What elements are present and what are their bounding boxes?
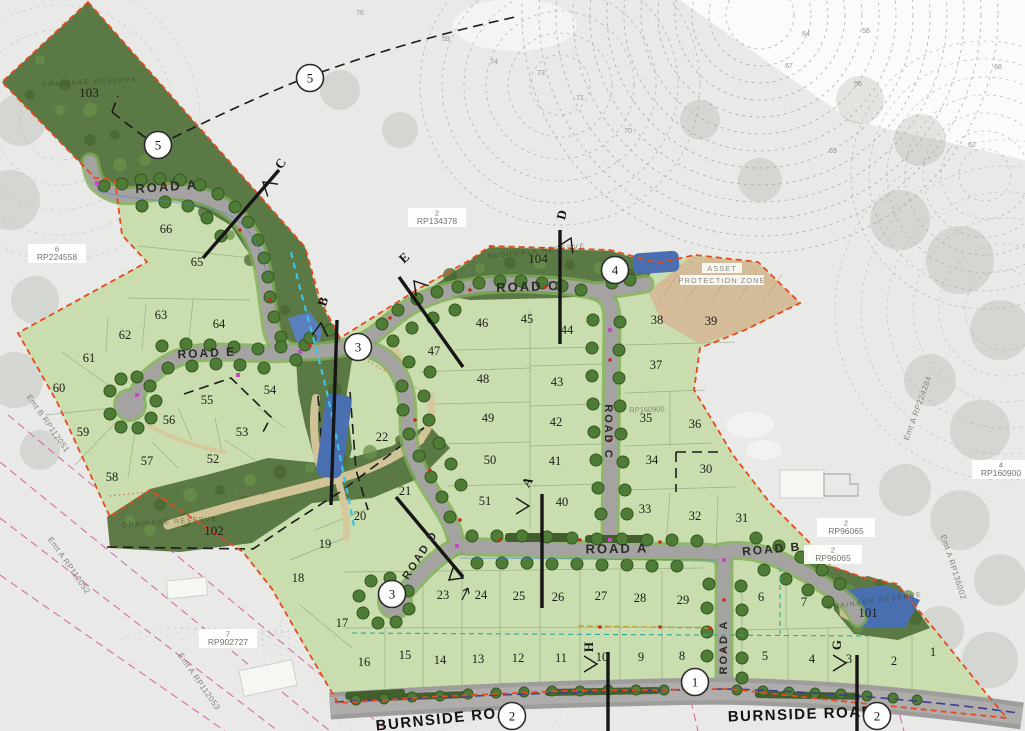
- street-tree: [834, 578, 846, 590]
- street-tree: [466, 530, 478, 542]
- lot-number: 30: [700, 462, 713, 476]
- street-tree: [836, 689, 846, 699]
- street-tree: [646, 560, 658, 572]
- contour-elevation-label: 67: [785, 63, 793, 70]
- lot-number: 38: [651, 313, 664, 327]
- existing-building: [780, 470, 824, 498]
- rp-plan-number: RP902727: [208, 637, 248, 647]
- street-tree: [229, 201, 241, 213]
- street-tree: [614, 316, 626, 328]
- contour-elevation-label: 62: [968, 142, 976, 149]
- lot-number: 15: [399, 648, 412, 662]
- canopy: [273, 465, 287, 479]
- street-tree: [587, 398, 599, 410]
- hydrant-dot: [413, 418, 417, 422]
- lot-number: 60: [53, 381, 66, 395]
- road-name-label: ROAD C: [602, 404, 614, 459]
- aerial-foliage: [320, 70, 360, 110]
- street-tree: [736, 672, 748, 684]
- street-tree: [425, 471, 437, 483]
- street-tree: [372, 617, 384, 629]
- lot-number: 11: [555, 651, 567, 665]
- lot-number: 9: [638, 650, 644, 664]
- callout-number: 3: [389, 587, 396, 602]
- lot-number: 47: [428, 344, 441, 358]
- hydrant-dot: [498, 538, 502, 542]
- lot-number: 4: [809, 652, 816, 666]
- street-tree: [592, 482, 604, 494]
- street-tree: [445, 458, 457, 470]
- lot-number: 45: [521, 312, 534, 326]
- hydrant-dot: [722, 598, 726, 602]
- lot-number: 64: [213, 317, 226, 331]
- contour-elevation-label: 70: [624, 128, 632, 135]
- street-tree: [571, 558, 583, 570]
- lot-number: 7: [801, 595, 807, 609]
- street-tree: [418, 390, 430, 402]
- street-tree: [433, 437, 445, 449]
- utility-marker: [722, 558, 726, 562]
- lot-number: 32: [689, 509, 702, 523]
- street-tree: [758, 564, 770, 576]
- street-tree: [736, 604, 748, 616]
- canopy: [215, 485, 225, 495]
- hydrant-dot: [708, 626, 712, 630]
- street-tree: [431, 286, 443, 298]
- canopy: [280, 305, 290, 315]
- street-tree: [262, 271, 274, 283]
- contour-elevation-label: 64: [802, 31, 810, 38]
- hydrant-dot: [598, 625, 602, 629]
- lot-number: 1: [930, 645, 936, 659]
- street-tree: [471, 557, 483, 569]
- lot-number: 34: [646, 453, 659, 467]
- street-tree: [614, 400, 626, 412]
- street-tree: [104, 385, 116, 397]
- hydrant-dot: [388, 316, 392, 320]
- lot-number: 27: [595, 589, 608, 603]
- street-tree: [353, 590, 365, 602]
- street-tree: [145, 412, 157, 424]
- lot-number: 35: [640, 411, 653, 425]
- rp-plan-number: RP160900: [981, 468, 1021, 478]
- street-tree: [156, 340, 168, 352]
- canopy: [84, 134, 96, 146]
- lot-number: 37: [650, 358, 663, 372]
- contour-elevation-label: 71: [576, 95, 584, 102]
- street-tree: [701, 602, 713, 614]
- section-letter: H: [581, 642, 596, 652]
- lot-number: 104: [528, 251, 548, 266]
- canopy: [154, 499, 166, 511]
- contour-elevation-label: 76: [356, 10, 364, 17]
- lot-number: 36: [689, 417, 702, 431]
- street-tree: [115, 373, 127, 385]
- street-tree: [357, 607, 369, 619]
- contour-elevation-label: 73: [537, 70, 545, 77]
- aerial-clear-patch: [726, 412, 774, 438]
- road-name-label: ROAD C: [496, 278, 560, 295]
- lot-number: 23: [437, 588, 450, 602]
- street-tree: [546, 558, 558, 570]
- lot-number: 25: [513, 589, 526, 603]
- lot-number: 13: [472, 652, 485, 666]
- lot-number: 29: [677, 593, 690, 607]
- lot-number: 50: [484, 453, 497, 467]
- lot-number: 58: [106, 470, 119, 484]
- street-tree: [736, 652, 748, 664]
- contour-elevation-label: 69: [829, 148, 837, 155]
- lot-number: 55: [201, 393, 214, 407]
- hydrant-dot: [268, 298, 272, 302]
- street-tree: [666, 534, 678, 546]
- callout-number: 2: [509, 709, 516, 724]
- street-tree: [387, 335, 399, 347]
- lot-number: 5: [762, 649, 768, 663]
- street-tree: [392, 304, 404, 316]
- lot-number: 103: [79, 85, 99, 100]
- lot-number: 44: [561, 323, 574, 337]
- street-tree: [617, 456, 629, 468]
- street-tree: [596, 559, 608, 571]
- street-tree: [201, 212, 213, 224]
- road-name-label: ROAD A: [585, 540, 648, 556]
- street-tree: [407, 692, 417, 702]
- lot-number: 66: [160, 222, 173, 236]
- lot-number: 101: [858, 605, 878, 620]
- lot-number: 6: [758, 590, 764, 604]
- street-tree: [516, 530, 528, 542]
- street-tree: [691, 535, 703, 547]
- canopy: [183, 488, 197, 502]
- hydrant-dot: [658, 625, 662, 629]
- lot-number: 18: [292, 571, 305, 585]
- hydrant-dot: [608, 358, 612, 362]
- street-tree: [736, 628, 748, 640]
- lot-number: 22: [376, 430, 389, 444]
- lot-number: 40: [556, 495, 569, 509]
- canopy: [565, 260, 575, 270]
- canopy: [504, 257, 516, 269]
- street-tree: [586, 342, 598, 354]
- hedge: [505, 533, 575, 542]
- callout-number: 3: [355, 340, 362, 355]
- callout-number: 5: [307, 71, 314, 86]
- aerial-foliage: [974, 554, 1025, 606]
- utility-marker: [298, 350, 302, 354]
- street-tree: [98, 180, 110, 192]
- contour-elevation-label: 68: [994, 64, 1002, 71]
- canopy: [363, 445, 377, 459]
- site-plan-map: CBEDAHG ROAD AROAD EROAD CROAD CROAD ARO…: [0, 0, 1025, 731]
- utility-marker: [455, 544, 459, 548]
- lot-number: 2: [891, 654, 897, 668]
- site-plan-svg: CBEDAHG ROAD AROAD EROAD CROAD CROAD ARO…: [0, 0, 1025, 731]
- hydrant-dot: [238, 228, 242, 232]
- lot-number: 62: [119, 328, 132, 342]
- lot-number: 8: [679, 649, 685, 663]
- street-tree: [735, 580, 747, 592]
- street-tree: [376, 318, 388, 330]
- lot-number: 26: [552, 590, 565, 604]
- lot-number: 14: [434, 653, 447, 667]
- street-tree: [406, 322, 418, 334]
- street-tree: [621, 559, 633, 571]
- aerial-foliage: [870, 190, 930, 250]
- street-tree: [424, 366, 436, 378]
- lot-number: 31: [736, 511, 749, 525]
- street-tree: [619, 484, 631, 496]
- apz-label-line1: ASSET: [707, 264, 737, 273]
- lot-number: 28: [634, 591, 647, 605]
- lot-number: 42: [550, 415, 563, 429]
- rp-plan-number: RP134378: [417, 216, 457, 226]
- street-tree: [566, 532, 578, 544]
- aerial-foliage: [879, 464, 931, 516]
- road-name-label: ROAD A: [718, 620, 730, 675]
- lot-number: 57: [141, 454, 154, 468]
- street-tree: [491, 688, 501, 698]
- aerial-foliage: [930, 490, 990, 550]
- aerial-foliage: [950, 400, 1010, 460]
- lot-number: 59: [77, 425, 90, 439]
- canopy: [475, 263, 485, 273]
- street-tree: [136, 200, 148, 212]
- street-tree: [444, 511, 456, 523]
- street-tree: [351, 695, 361, 705]
- street-tree: [423, 414, 435, 426]
- street-tree: [234, 359, 246, 371]
- hydrant-dot: [428, 468, 432, 472]
- lot-number: 102: [204, 523, 224, 538]
- contour-elevation-label: 56: [854, 81, 862, 88]
- street-tree: [131, 371, 143, 383]
- existing-building: [166, 577, 208, 599]
- aerial-clear-patch: [453, 0, 577, 51]
- street-tree: [403, 356, 415, 368]
- street-tree: [701, 650, 713, 662]
- utility-marker: [236, 373, 240, 377]
- street-tree: [912, 695, 922, 705]
- road: [597, 284, 645, 291]
- canopy: [35, 55, 45, 65]
- street-tree: [275, 341, 287, 353]
- lot-number: 56: [163, 413, 176, 427]
- street-tree: [212, 188, 224, 200]
- street-tree: [186, 360, 198, 372]
- street-tree: [621, 508, 633, 520]
- street-tree: [390, 616, 402, 628]
- lot-number: 33: [639, 502, 652, 516]
- street-tree: [586, 370, 598, 382]
- apz-label-line2: PROTECTION ZONE: [678, 276, 765, 285]
- canopy: [113, 158, 127, 172]
- lot-number: 17: [336, 616, 349, 630]
- road-pad: [116, 391, 144, 419]
- lot-number: 63: [155, 308, 168, 322]
- street-tree: [258, 362, 270, 374]
- street-tree: [162, 362, 174, 374]
- street-tree: [463, 689, 473, 699]
- canopy: [55, 105, 65, 115]
- rp-plan-number: RP224558: [37, 252, 77, 262]
- callout-number: 5: [155, 138, 162, 153]
- street-tree: [104, 408, 116, 420]
- street-tree: [595, 508, 607, 520]
- street-tree: [587, 314, 599, 326]
- lot-number: 53: [236, 425, 249, 439]
- street-tree: [452, 281, 464, 293]
- canopy: [244, 474, 256, 486]
- street-tree: [397, 404, 409, 416]
- lot-number: 20: [354, 509, 367, 523]
- aerial-foliage: [382, 112, 418, 148]
- aerial-clear-patch: [746, 440, 782, 460]
- street-tree: [210, 358, 222, 370]
- hydrant-dot: [578, 538, 582, 542]
- lot-number: 51: [479, 494, 492, 508]
- street-tree: [150, 395, 162, 407]
- utility-marker: [135, 393, 139, 397]
- detention-basin: [632, 250, 679, 274]
- street-tree: [396, 380, 408, 392]
- lot-number: 52: [207, 452, 220, 466]
- hydrant-dot: [658, 540, 662, 544]
- street-tree: [615, 428, 627, 440]
- street-tree: [403, 603, 415, 615]
- contour-elevation-label: 59: [442, 36, 450, 43]
- lot-number: 43: [551, 375, 564, 389]
- street-tree: [252, 343, 264, 355]
- utility-marker: [608, 328, 612, 332]
- canopy: [83, 103, 97, 117]
- street-tree: [268, 311, 280, 323]
- contour-elevation-label: 58: [862, 28, 870, 35]
- lot-number: 19: [319, 537, 332, 551]
- street-tree: [116, 178, 128, 190]
- street-tree: [132, 422, 144, 434]
- aerial-foliage: [680, 100, 720, 140]
- lot-number: 21: [399, 484, 412, 498]
- street-tree: [816, 564, 828, 576]
- lot-number: 48: [477, 372, 490, 386]
- street-tree: [575, 284, 587, 296]
- aerial-foliage: [738, 158, 782, 202]
- section-letter: G: [829, 640, 844, 650]
- callout-number: 4: [612, 263, 619, 278]
- street-tree: [613, 372, 625, 384]
- contour-elevation-label: 74: [490, 59, 498, 66]
- rp-plan-number: RP96065: [815, 553, 851, 563]
- lot-number: 65: [191, 255, 204, 269]
- lot-number: 61: [83, 351, 96, 365]
- street-tree: [780, 573, 792, 585]
- street-tree: [455, 479, 467, 491]
- street-tree: [115, 421, 127, 433]
- street-tree: [413, 450, 425, 462]
- street-tree: [182, 200, 194, 212]
- street-tree: [613, 344, 625, 356]
- lot-number: 24: [475, 588, 488, 602]
- utility-marker: [95, 181, 99, 185]
- lot-number: 39: [705, 314, 718, 328]
- street-tree: [473, 277, 485, 289]
- street-tree: [449, 304, 461, 316]
- street-tree: [590, 454, 602, 466]
- hydrant-dot: [468, 288, 472, 292]
- lot-number: 54: [264, 383, 277, 397]
- lot-number: 16: [358, 655, 371, 669]
- lot-number: 46: [476, 316, 489, 330]
- street-tree: [436, 491, 448, 503]
- street-tree: [403, 428, 415, 440]
- callout-number: 1: [692, 675, 699, 690]
- lot-number: 41: [549, 454, 562, 468]
- canopy: [110, 130, 120, 140]
- lot-number: 10: [596, 650, 609, 664]
- canopy: [25, 90, 35, 100]
- lot-number: 12: [512, 651, 525, 665]
- street-tree: [588, 426, 600, 438]
- canopy: [305, 463, 315, 473]
- street-tree: [290, 354, 302, 366]
- street-tree: [365, 575, 377, 587]
- aerial-foliage: [894, 114, 946, 166]
- lot-number: 49: [482, 411, 495, 425]
- street-tree: [144, 380, 156, 392]
- lot-number: 3: [846, 652, 852, 666]
- rp-plan-number: RP96065: [828, 526, 864, 536]
- callout-number: 2: [874, 709, 881, 724]
- hydrant-dot: [458, 518, 462, 522]
- hydrant-dot: [308, 343, 312, 347]
